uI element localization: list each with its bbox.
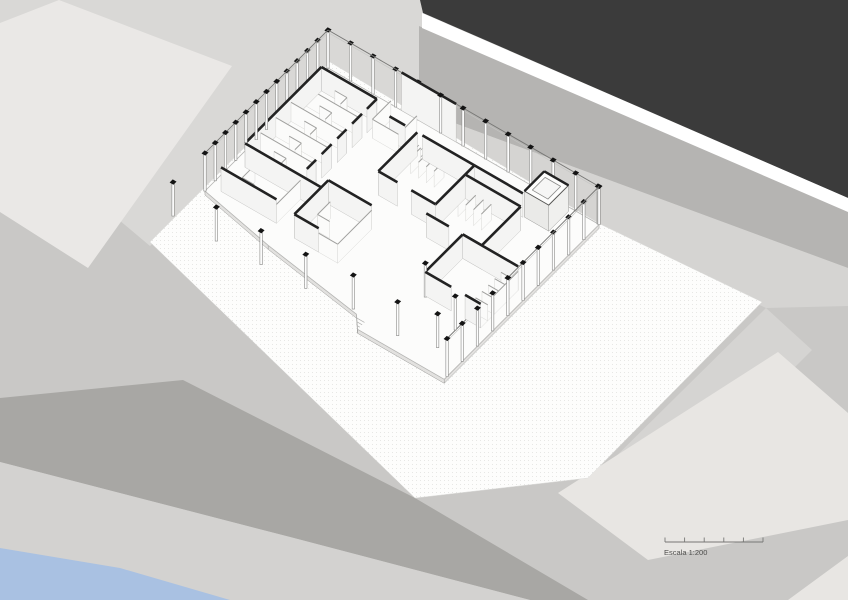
column-shaft [235, 122, 237, 160]
column-shaft [552, 232, 554, 270]
column-shaft [522, 263, 524, 301]
column-shaft [172, 182, 174, 216]
column-shaft [349, 43, 351, 81]
scale-label: Escala 1:200 [664, 548, 707, 557]
column-shaft [436, 314, 438, 348]
column-shaft [537, 247, 539, 285]
column-shaft [224, 133, 226, 171]
column-shaft [567, 217, 569, 255]
column-shaft [461, 323, 463, 361]
column-shaft [462, 108, 464, 146]
column-shaft [507, 278, 509, 316]
column-shaft [598, 187, 600, 225]
column-shaft [446, 339, 448, 377]
column-shaft [454, 296, 456, 330]
column-shaft [327, 30, 329, 68]
column-shaft [507, 134, 509, 172]
column-shaft [305, 254, 307, 288]
column-shaft [484, 121, 486, 159]
column-shaft [476, 308, 478, 346]
column-shaft [491, 293, 493, 331]
column-shaft [260, 231, 262, 265]
column-shaft [372, 56, 374, 94]
column-shaft [574, 173, 576, 211]
column-shaft [583, 202, 585, 240]
column-shaft [214, 143, 216, 181]
axonometric-drawing: Escala 1:200 [0, 0, 848, 600]
column-shaft [204, 153, 206, 191]
site-axonometric-canvas: Escala 1:200 [0, 0, 848, 600]
column-shaft [352, 275, 354, 309]
column-shaft [394, 69, 396, 107]
column-shaft [529, 147, 531, 185]
column-shaft [265, 92, 267, 130]
column-shaft [439, 95, 441, 133]
column-shaft [215, 207, 217, 241]
column-shaft [396, 302, 398, 336]
column-shaft [255, 102, 257, 140]
